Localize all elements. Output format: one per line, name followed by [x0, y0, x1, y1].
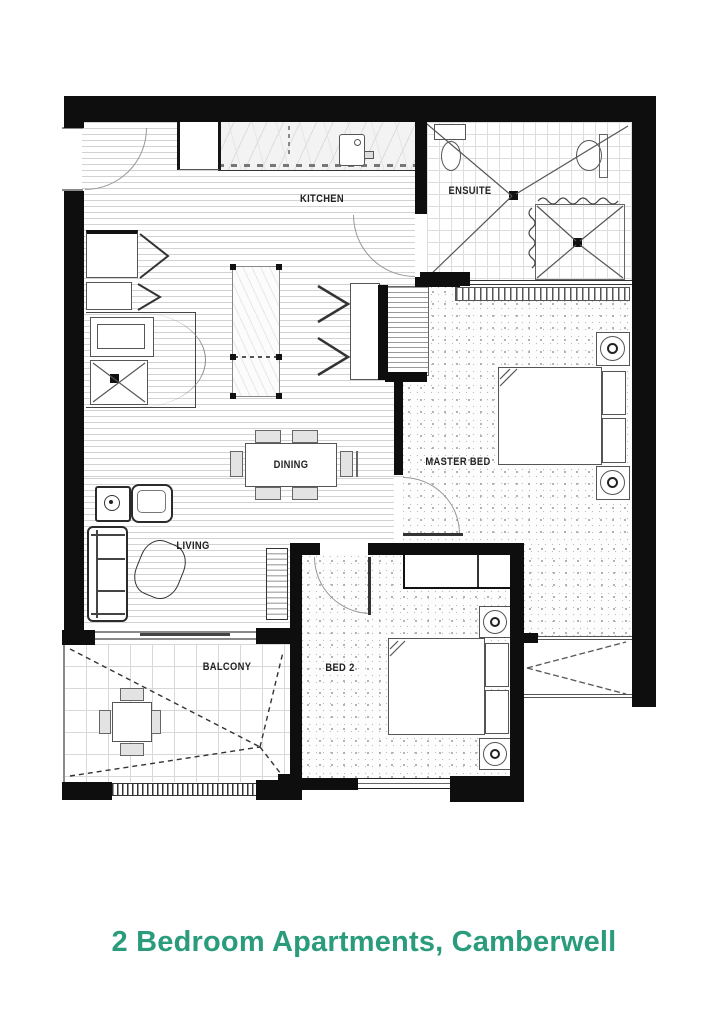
- tile-floor-balcony: [64, 644, 290, 782]
- sofa: [87, 526, 128, 622]
- wall-linen-west: [378, 285, 388, 380]
- island-corner-tick: [276, 393, 282, 399]
- wall-bottom-left: [300, 778, 358, 790]
- floor-plan-image[interactable]: KITCHEN ENSUITE MASTER BED DINING LIVING…: [0, 0, 728, 810]
- room-label-balcony: BALCONY: [203, 661, 252, 673]
- master-window-north: [470, 280, 632, 285]
- wall-bottom-right: [450, 776, 524, 802]
- linen-shelves: [386, 286, 429, 376]
- vanity-shelf: [599, 134, 608, 178]
- sofa-cushion-line: [97, 558, 125, 560]
- island-corner-tick: [230, 393, 236, 399]
- balcony-edge-line: [63, 644, 65, 782]
- balcony-slider-track: [95, 638, 256, 640]
- master-bed-mattress: [498, 367, 602, 465]
- wall-linen-south: [385, 372, 427, 382]
- wall-master-north: [415, 277, 460, 287]
- shower-drain: [573, 238, 582, 247]
- island-corner-tick: [276, 354, 282, 360]
- toilet-cistern: [434, 124, 466, 140]
- dining-chair: [255, 430, 281, 443]
- balcony-chair: [99, 710, 111, 734]
- fridge-space: [86, 230, 138, 278]
- laundry-tub-basin: [97, 324, 145, 349]
- master-bed-pillow: [602, 371, 626, 415]
- kitchen-sink: [339, 134, 365, 166]
- room-label-dining: DINING: [274, 459, 309, 471]
- balcony-slider-panel: [140, 633, 230, 636]
- kitchen-island: [232, 266, 280, 397]
- island-corner-tick: [276, 264, 282, 270]
- sofa-arm-line: [91, 534, 125, 536]
- lamp-icon-inner: [607, 477, 618, 488]
- sink-tap: [364, 151, 374, 159]
- wall-kitchen-ensuite: [415, 122, 427, 214]
- dining-chair-mark: [356, 451, 358, 477]
- page: KITCHEN ENSUITE MASTER BED DINING LIVING…: [0, 0, 728, 1034]
- wall-top: [75, 96, 656, 122]
- washing-machine-center: [110, 374, 119, 383]
- master-door-leaf: [403, 533, 463, 536]
- armchair-cushion: [137, 490, 166, 513]
- dining-chair: [230, 451, 243, 477]
- wall-balcony-post-sw: [62, 782, 112, 800]
- bed2-pillow: [485, 690, 509, 734]
- balcony-table: [112, 702, 152, 742]
- ensuite-floor-waste: [509, 191, 518, 200]
- island-corner-tick: [230, 264, 236, 270]
- master-bed-pillow: [602, 418, 626, 463]
- benchtop-edge-dashes: [218, 164, 415, 167]
- cooktop-unit: [177, 122, 221, 170]
- sofa-back-line: [96, 530, 98, 618]
- carpet-master-bed-south: [524, 543, 632, 636]
- wall-hall-master: [394, 373, 403, 475]
- balcony-chair: [120, 743, 144, 756]
- sofa-arm-line: [91, 613, 125, 615]
- room-label-master-bed: MASTER BED: [425, 456, 490, 468]
- wall-bed2-west: [290, 545, 302, 778]
- side-balcony-bottom-line: [524, 694, 632, 698]
- lamp-icon-inner: [490, 617, 500, 627]
- wall-bed2-north-right: [368, 543, 524, 555]
- dining-chair: [340, 451, 353, 477]
- wall-left-top: [64, 96, 84, 128]
- wall-bed2-east: [510, 543, 524, 778]
- island-divider: [234, 356, 278, 358]
- bed2-window-midline: [358, 783, 450, 784]
- dining-chair: [292, 430, 318, 443]
- wall-side-balcony-stub: [522, 633, 538, 643]
- room-label-kitchen: KITCHEN: [300, 193, 344, 205]
- benchtop-divider: [288, 124, 290, 154]
- caption-title: 2 Bedroom Apartments, Camberwell: [0, 926, 728, 959]
- bed2-wardrobe-divider: [477, 555, 479, 587]
- tv-unit: [266, 548, 288, 620]
- oven-unit: [86, 282, 132, 310]
- lamp-icon-inner: [490, 749, 500, 759]
- room-label-bed2: BED 2: [325, 662, 354, 674]
- bed2-pillow: [485, 643, 509, 687]
- balcony-chair: [120, 688, 144, 701]
- room-label-living: LIVING: [176, 540, 209, 552]
- bed2-mattress: [388, 638, 485, 735]
- bed2-wardrobe: [403, 553, 513, 589]
- sink-drain: [354, 139, 361, 146]
- bed2-door-leaf: [368, 557, 371, 615]
- plant-dot: [109, 500, 113, 504]
- master-robe: [455, 287, 630, 301]
- wall-balcony-post-ne: [256, 628, 302, 644]
- side-balcony-top-line: [524, 636, 632, 640]
- toilet-bowl: [441, 141, 461, 171]
- dining-chair: [255, 487, 281, 500]
- sofa-cushion-line: [97, 590, 125, 592]
- room-label-ensuite: ENSUITE: [449, 185, 492, 197]
- balcony-railing: [112, 783, 258, 796]
- wall-left: [64, 191, 84, 640]
- pantry-cupboard: [350, 283, 380, 380]
- lamp-icon-inner: [607, 343, 618, 354]
- wall-balcony-post-nw: [62, 630, 95, 645]
- dining-chair: [292, 487, 318, 500]
- wall-right: [632, 96, 656, 707]
- wall-bottom-post: [278, 774, 302, 800]
- island-corner-tick: [230, 354, 236, 360]
